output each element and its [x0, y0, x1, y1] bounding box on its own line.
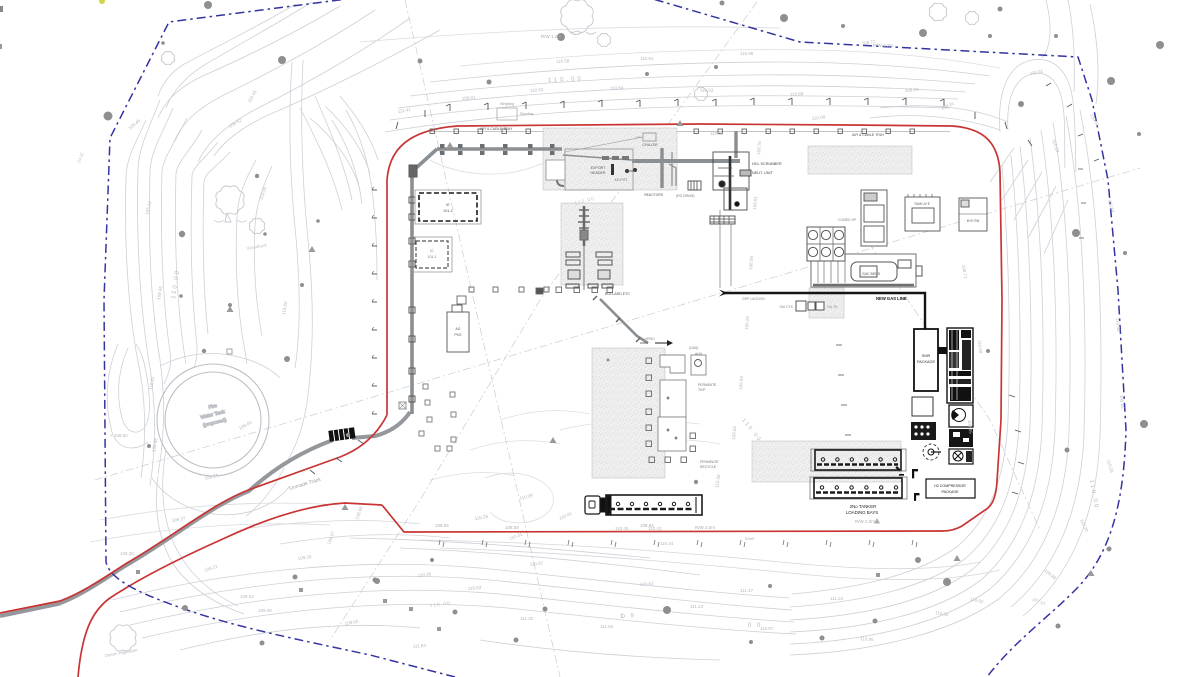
svg-text:110.58: 110.58: [556, 58, 570, 64]
svg-text:R/W 1.2m: R/W 1.2m: [873, 43, 893, 48]
svg-text:110.88: 110.88: [740, 51, 754, 56]
svg-text:REACTORS: REACTORS: [644, 193, 664, 197]
svg-text:RECYCLE: RECYCLE: [700, 465, 717, 469]
svg-text:AIR & CABLE TRAY: AIR & CABLE TRAY: [480, 127, 513, 131]
svg-text:CHILLER: CHILLER: [642, 143, 658, 147]
svg-text:PACKAGE: PACKAGE: [941, 490, 959, 494]
svg-text:108.04: 108.04: [505, 525, 519, 530]
svg-text:EXPORT: EXPORT: [591, 166, 607, 170]
svg-text:R/W 2.0m: R/W 2.0m: [855, 519, 875, 524]
svg-text:BOLLARD ETC: BOLLARD ETC: [605, 292, 630, 296]
svg-text:PERMEATE: PERMEATE: [700, 460, 719, 464]
svg-text:M+E RM: M+E RM: [967, 219, 980, 223]
svg-text:110.44: 110.44: [660, 541, 674, 546]
svg-text:0 0: 0 0: [748, 623, 762, 629]
svg-text:R/W 1.2m: R/W 1.2m: [541, 34, 561, 39]
svg-text:COMED HP: COMED HP: [838, 218, 857, 222]
svg-text:R/W 2.0m: R/W 2.0m: [695, 525, 715, 530]
svg-text:+ 108.50: + 108.50: [110, 433, 128, 438]
svg-text:111.47: 111.47: [740, 588, 754, 593]
svg-text:NEUT. UNIT: NEUT. UNIT: [752, 171, 774, 175]
svg-text:GAC BEDS: GAC BEDS: [862, 272, 881, 276]
svg-text:SMR: SMR: [922, 354, 931, 358]
svg-text:110.68: 110.68: [790, 91, 804, 97]
svg-text:109.08: 109.08: [258, 608, 272, 613]
svg-text:111.30: 111.30: [520, 616, 534, 621]
svg-text:108.84: 108.84: [435, 523, 449, 528]
svg-text:110.09: 110.09: [710, 131, 724, 136]
svg-text:(GAS): (GAS): [689, 346, 698, 350]
svg-text:101-1: 101-1: [428, 255, 437, 259]
svg-text:PERMEATE: PERMEATE: [698, 383, 717, 387]
svg-text:SALT/TK: SALT/TK: [779, 305, 793, 309]
svg-text:109.02: 109.02: [240, 594, 254, 599]
svg-text:TANK A+E: TANK A+E: [914, 202, 931, 206]
svg-text:Standing: Standing: [520, 112, 533, 116]
svg-text:HEADER: HEADER: [591, 171, 606, 175]
svg-text:H2 COMPRESSOR: H2 COMPRESSOR: [934, 484, 966, 488]
svg-text:(RO DRUM): (RO DRUM): [676, 194, 694, 198]
svg-text:AHU: AHU: [695, 352, 703, 356]
svg-text:111.23: 111.23: [690, 604, 704, 609]
svg-text:TK/P: TK/P: [698, 388, 706, 392]
svg-text:110.53: 110.53: [700, 88, 714, 93]
svg-text:108.84: 108.84: [640, 523, 654, 528]
svg-text:KO POT: KO POT: [615, 178, 628, 182]
svg-text:AG: AG: [456, 327, 461, 331]
svg-text:AIR & CABLE TRAY: AIR & CABLE TRAY: [852, 133, 885, 137]
svg-text:PKG: PKG: [454, 333, 462, 337]
svg-text:110.45: 110.45: [615, 526, 629, 531]
svg-text:101-1: 101-1: [443, 209, 453, 213]
svg-text:HCL SCRUBBER: HCL SCRUBBER: [752, 162, 782, 166]
svg-text:OIL TK: OIL TK: [827, 305, 838, 309]
svg-text:111.23: 111.23: [830, 596, 844, 601]
svg-text:1 0 9: 1 0 9: [618, 613, 636, 620]
svg-text:HRSG: HRSG: [645, 337, 655, 341]
svg-text:Weighing: Weighing: [500, 102, 514, 106]
svg-text:2No TANKER: 2No TANKER: [850, 504, 877, 509]
svg-text:111.56: 111.56: [600, 624, 614, 629]
svg-text:109.30: 109.30: [120, 551, 134, 556]
svg-text:110.93: 110.93: [530, 87, 544, 93]
svg-text:GRP LAGOON: GRP LAGOON: [742, 297, 765, 301]
svg-text:IE: IE: [446, 203, 450, 207]
svg-text:PACKAGE: PACKAGE: [917, 360, 936, 364]
svg-text:Grout: Grout: [745, 537, 754, 541]
svg-text:IC: IC: [430, 249, 434, 253]
svg-text:LOADING BAYS: LOADING BAYS: [846, 510, 878, 515]
svg-text:110.84: 110.84: [610, 85, 624, 91]
svg-text:110.54: 110.54: [640, 56, 654, 61]
svg-text:NEW GAS LINE: NEW GAS LINE: [876, 296, 907, 301]
